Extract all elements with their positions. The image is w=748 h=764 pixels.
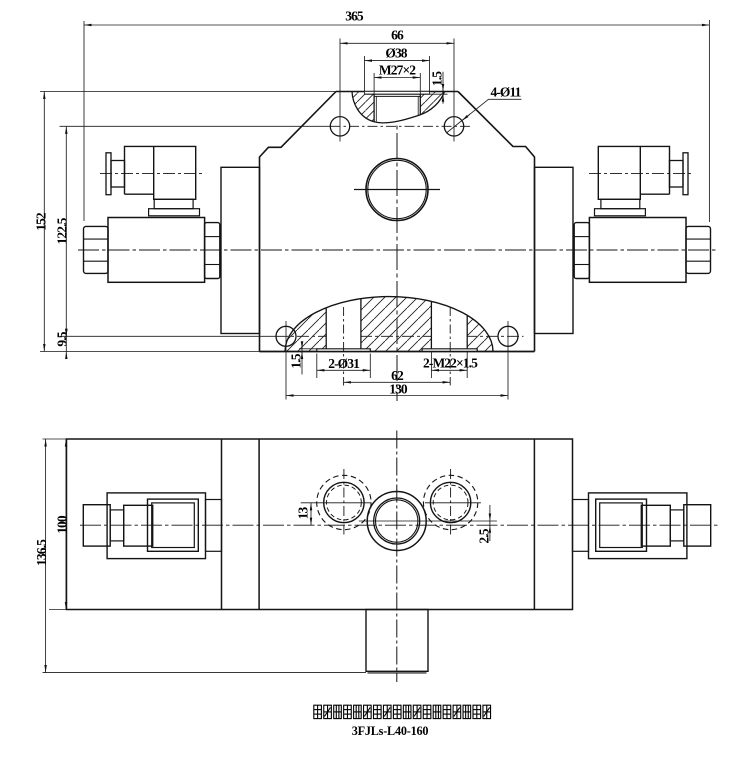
svg-text:130: 130 bbox=[389, 382, 408, 397]
svg-text:4-Ø11: 4-Ø11 bbox=[490, 85, 521, 100]
svg-text:136.5: 136.5 bbox=[34, 539, 49, 566]
svg-text:122.5: 122.5 bbox=[55, 217, 70, 244]
svg-text:152: 152 bbox=[34, 212, 49, 231]
svg-text:3FJLs-L40-160: 3FJLs-L40-160 bbox=[352, 724, 429, 738]
svg-text:2.5: 2.5 bbox=[477, 528, 492, 543]
svg-text:2-Ø31: 2-Ø31 bbox=[328, 356, 360, 371]
svg-text:2-M22×1.5: 2-M22×1.5 bbox=[423, 356, 478, 371]
svg-text:9.5: 9.5 bbox=[55, 331, 70, 346]
svg-text:1.5: 1.5 bbox=[289, 353, 304, 368]
svg-text:100: 100 bbox=[54, 515, 69, 534]
svg-text:66: 66 bbox=[391, 28, 404, 43]
svg-text:13: 13 bbox=[296, 507, 311, 520]
svg-text:1.5: 1.5 bbox=[430, 71, 445, 86]
svg-text:Ø38: Ø38 bbox=[385, 46, 407, 61]
svg-text:M27×2: M27×2 bbox=[379, 63, 416, 78]
svg-text:365: 365 bbox=[345, 9, 364, 24]
